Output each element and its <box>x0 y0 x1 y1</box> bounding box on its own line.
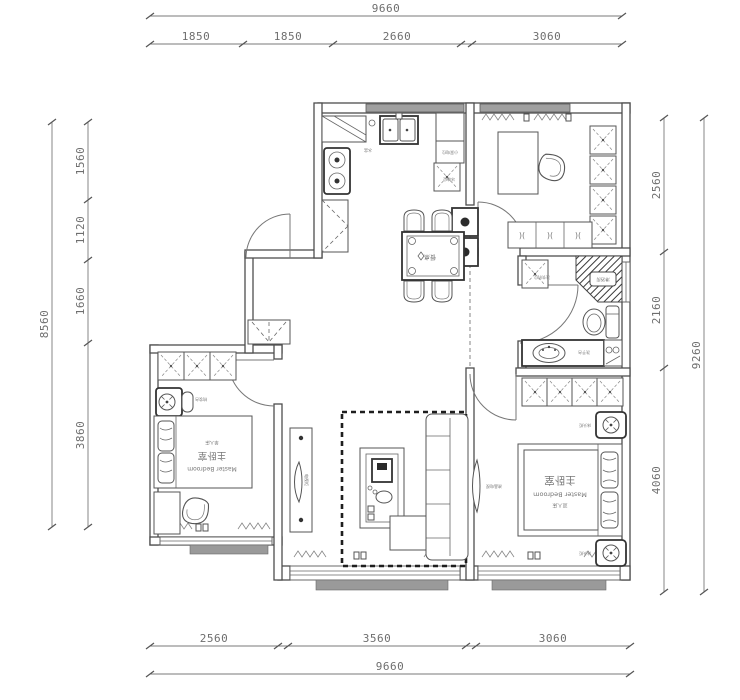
wall-kitchen-west <box>314 103 322 258</box>
living-room: 电视柜 <box>290 412 468 566</box>
bedroom-cabinet <box>154 492 180 534</box>
master-bedroom: 床头柜 主卧室 Master Bedroom 双人床 床头柜 液晶电视 <box>473 378 627 566</box>
nightstand-top: 床头柜 <box>579 412 626 438</box>
desk-chair <box>536 152 567 183</box>
wall-bottom-c <box>620 566 630 580</box>
wall-study-south-b <box>520 248 630 256</box>
master-name-en: Master Bedroom <box>533 491 587 499</box>
desk <box>498 132 538 194</box>
svg-text:冰箱位: 冰箱位 <box>443 177 455 183</box>
dim-top-4: 3060 <box>533 30 562 43</box>
sink-label: 水盆 <box>364 148 372 154</box>
kitchen-window <box>366 104 464 112</box>
washing-machine-spot: 洗衣机位 <box>522 260 550 288</box>
tv-cabinet: 电视柜 <box>290 428 312 532</box>
master-bed: 主卧室 Master Bedroom 双人床 <box>518 444 622 536</box>
bathroom-window <box>622 262 630 302</box>
study-wardrobe <box>590 126 616 244</box>
study-window <box>480 104 570 112</box>
bedroom-chair <box>181 496 210 526</box>
small-appliance-label: 小家电位 <box>442 150 458 156</box>
dining-chair <box>432 281 452 302</box>
master-window <box>478 566 620 590</box>
toilet <box>583 306 619 338</box>
dim-top-2: 1850 <box>274 30 303 43</box>
svg-text:)(: )( <box>575 231 581 240</box>
wall-foyer-step <box>245 250 322 258</box>
dimension-chain-top: 9660 1850 1850 2660 3060 <box>146 2 626 47</box>
study-room: )( )( )( <box>498 126 616 248</box>
dim-bottom-total: 9660 <box>376 660 405 673</box>
master-wardrobe <box>522 378 623 406</box>
dining-table: 餐桌 <box>402 232 464 280</box>
dim-top-1: 1850 <box>182 30 211 43</box>
vanity: 洗手台 <box>522 340 622 366</box>
dim-bottom-2: 3560 <box>363 632 392 645</box>
living-window <box>290 566 460 590</box>
svg-text:床头柜: 床头柜 <box>579 551 591 557</box>
dresser: 梳妆台 <box>156 388 207 416</box>
svg-text:)(: )( <box>547 231 553 240</box>
dining-chair <box>432 210 452 231</box>
dim-top-3: 2660 <box>383 30 412 43</box>
bathroom-door <box>520 285 578 343</box>
dim-left-3: 1660 <box>74 287 87 316</box>
dim-right-total: 9260 <box>690 341 703 370</box>
study-cabinet: )( )( )( <box>508 222 592 248</box>
sofa <box>426 414 468 560</box>
dim-right-2: 2160 <box>650 296 663 325</box>
dim-left-1: 1560 <box>74 147 87 176</box>
master-door <box>470 374 516 420</box>
stove <box>324 148 350 194</box>
dining-chair <box>404 281 424 302</box>
drainboard <box>322 116 375 142</box>
dim-left-2: 1120 <box>74 216 87 245</box>
dim-top-total: 9660 <box>372 2 401 15</box>
svg-text:淋浴房: 淋浴房 <box>596 276 610 283</box>
side-table <box>390 516 426 550</box>
dimension-chain-bottom: 2560 3560 3060 9660 <box>146 632 634 677</box>
dim-left-4: 3860 <box>74 421 87 450</box>
master-bed-type: 双人床 <box>552 502 567 509</box>
secondary-bedroom: 梳妆台 单人床 主卧室 Master Bedroom <box>154 352 252 534</box>
secondary-bed-type: 单人床 <box>205 439 219 446</box>
single-bed: 单人床 主卧室 Master Bedroom <box>154 416 252 488</box>
floor-plan: 9660 1850 1850 2660 3060 8560 1560 1120 … <box>0 0 740 700</box>
wall-bedroom-east-a <box>274 345 282 359</box>
shoe-cabinet <box>248 320 290 344</box>
dimension-chain-left: 8560 1560 1120 1660 3860 <box>38 119 92 530</box>
svg-text:液晶电视: 液晶电视 <box>486 484 502 490</box>
dim-right-3: 4060 <box>650 466 663 495</box>
master-tv: 液晶电视 <box>473 460 503 512</box>
wall-center-upper <box>466 103 474 205</box>
secondary-name-en: Master Bedroom <box>187 465 237 472</box>
fridge-spot: 冰箱位 <box>434 163 460 191</box>
shower: 淋浴房 <box>576 256 622 302</box>
svg-text:电视柜: 电视柜 <box>304 474 310 486</box>
dim-right-1: 2560 <box>650 171 663 200</box>
wall-master-north <box>516 368 630 376</box>
secondary-name-cn: 主卧室 <box>198 450 227 462</box>
svg-text:洗手台: 洗手台 <box>578 350 590 356</box>
counter-corner <box>436 113 464 141</box>
kitchen-sink <box>380 113 418 144</box>
master-name-cn: 主卧室 <box>544 474 576 487</box>
bedroom-wardrobe <box>158 352 236 380</box>
dim-bottom-3: 3060 <box>539 632 568 645</box>
dim-bottom-1: 2560 <box>200 632 229 645</box>
svg-text:)(: )( <box>519 231 525 240</box>
svg-text:梳妆台: 梳妆台 <box>195 397 207 403</box>
nightstand-bottom: 床头柜 <box>579 540 626 566</box>
svg-text:洗衣机位: 洗衣机位 <box>534 275 550 281</box>
dimension-chain-right: 2560 2160 4060 9260 <box>650 115 708 595</box>
base-cabinet <box>322 200 348 252</box>
svg-text:床头柜: 床头柜 <box>579 423 591 429</box>
wall-right <box>622 103 630 580</box>
svg-text:餐桌: 餐桌 <box>424 253 436 261</box>
wall-bedroom-east-b <box>274 404 282 580</box>
dining-chair <box>404 210 424 231</box>
dim-left-total: 8560 <box>38 310 51 339</box>
